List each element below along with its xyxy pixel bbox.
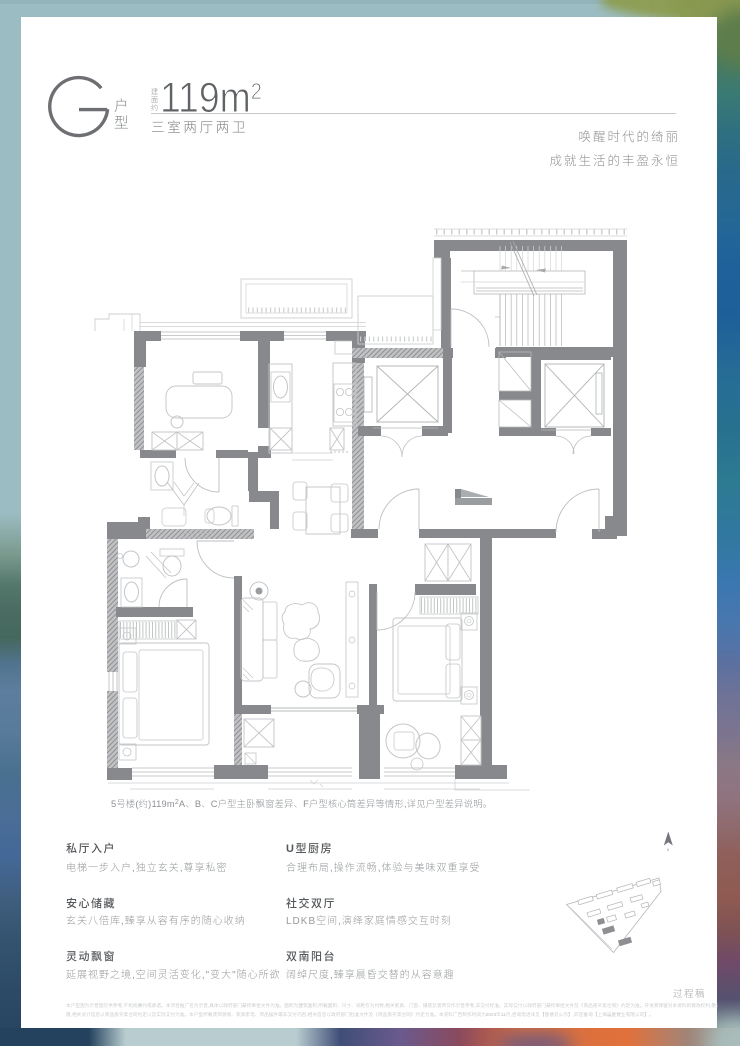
svg-text:N: N — [667, 848, 670, 852]
